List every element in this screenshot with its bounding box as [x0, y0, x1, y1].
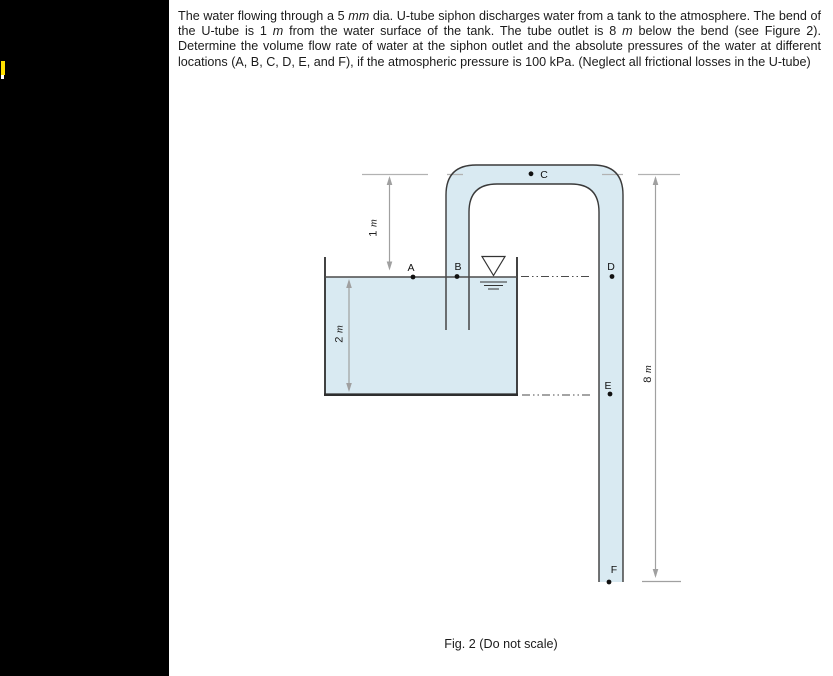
point-dot-a: [411, 275, 416, 280]
point-label-f: F: [611, 564, 617, 576]
point-label-a: A: [407, 262, 414, 274]
point-label-c: C: [540, 169, 548, 181]
dimension-label-1m: 1m: [368, 219, 380, 237]
point-dot-e: [608, 392, 613, 397]
siphon-figure: 1m 2m 8m A B C D E F: [0, 0, 833, 676]
arrow-up-icon: [653, 176, 659, 185]
arrow-down-icon: [387, 262, 393, 271]
point-label-d: D: [607, 261, 615, 273]
arrow-up-icon: [387, 176, 393, 185]
dimension-bend-to-outlet: 8m: [642, 176, 681, 582]
dimension-label-8m: 8m: [642, 365, 654, 383]
point-label-b: B: [454, 261, 461, 273]
arrow-down-icon: [653, 569, 659, 578]
point-dot-d: [610, 274, 615, 279]
point-dot-c: [529, 171, 534, 176]
dimension-bend-to-surface: 1m: [368, 176, 393, 271]
point-label-e: E: [604, 380, 611, 392]
point-dot-b: [455, 274, 460, 279]
dimension-label-2m: 2m: [334, 325, 346, 343]
point-dot-f: [607, 580, 612, 585]
tank-water: [325, 277, 517, 395]
